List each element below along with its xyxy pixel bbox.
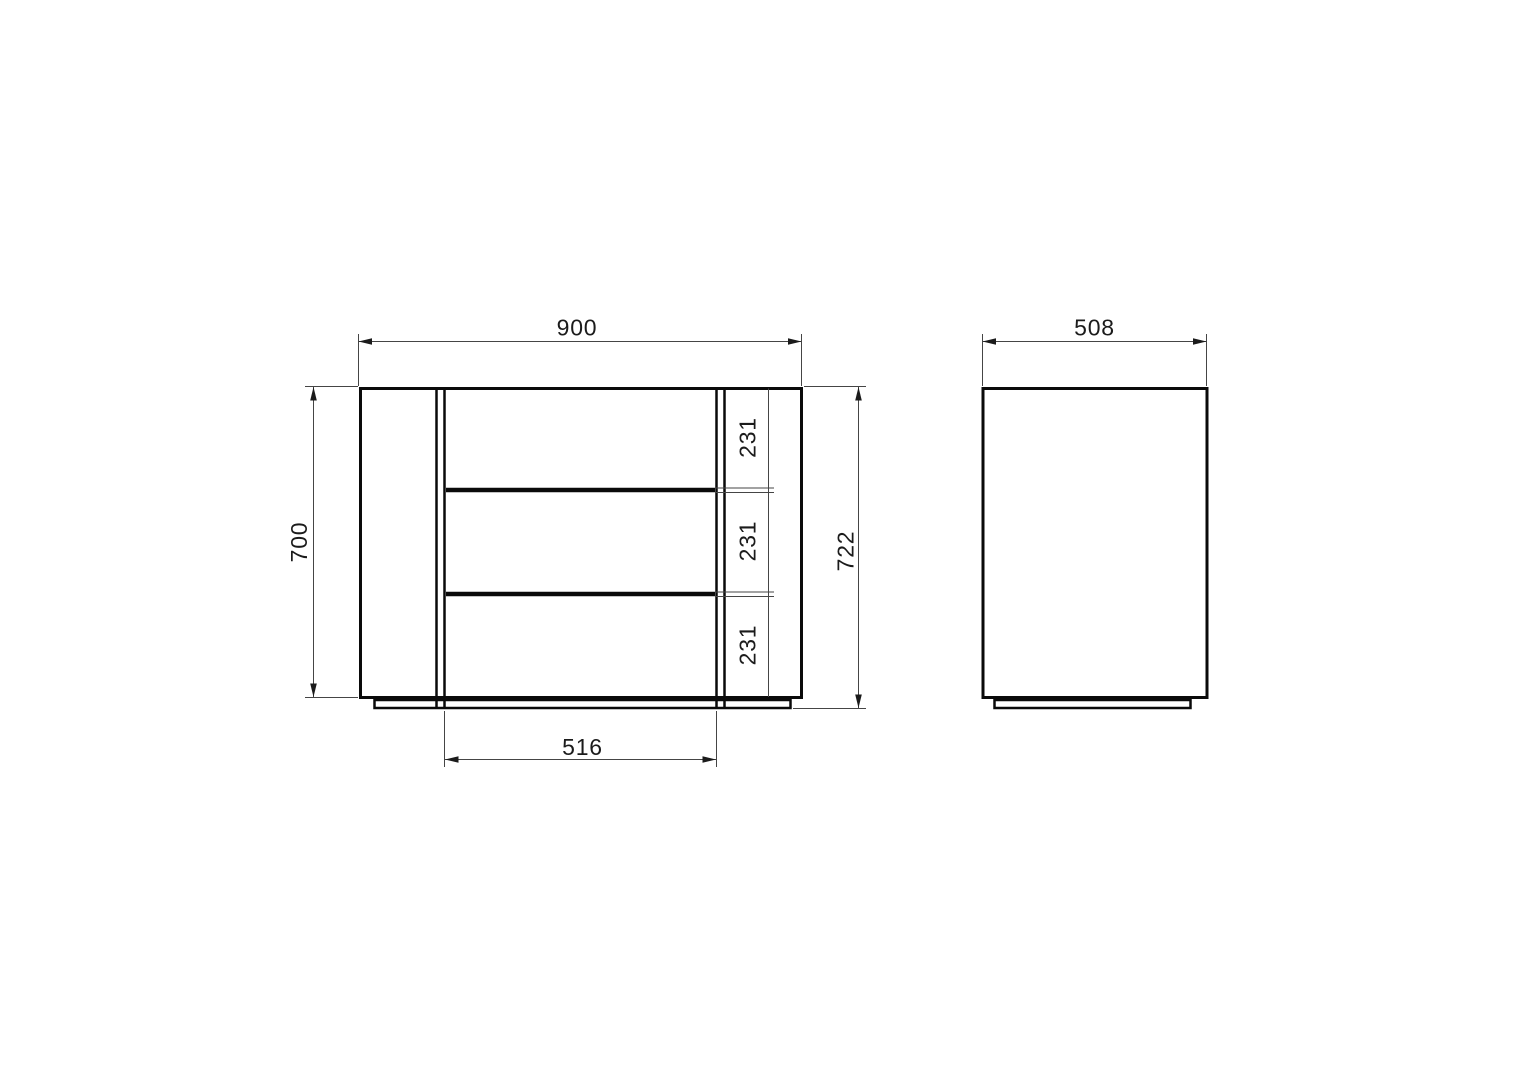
drawing-sheet: 900 700 722 231 231 [0,0,1521,1080]
dimension-label-depth: 508 [1074,315,1115,341]
dimension-label-drawer-2: 231 [735,521,761,562]
dimension-overall-width: 900 [359,315,802,387]
dimension-total-height: 722 [793,387,866,709]
dimension-label-drawer-3: 231 [735,625,761,666]
technical-drawing-canvas: 900 700 722 231 231 [0,0,1521,1080]
dimension-depth: 508 [983,315,1207,387]
dimension-label-drawer-1: 231 [735,417,761,458]
dimension-body-height: 700 [286,387,358,698]
dimension-label-drawer-bank-width: 516 [562,734,603,760]
arrowhead-right-icon [788,338,802,345]
arrowhead-up-icon [855,387,862,401]
arrowhead-left-icon [983,338,997,345]
dimension-label-total-height: 722 [833,531,859,572]
arrowhead-right-icon [703,756,717,763]
dimension-label-overall-width: 900 [557,315,598,341]
side-plinth [995,700,1191,708]
dimension-drawer-bank-width: 516 [445,711,717,767]
arrowhead-left-icon [445,756,459,763]
arrowhead-up-icon [310,387,317,401]
dimension-label-body-height: 700 [286,522,312,563]
side-view [983,389,1207,709]
arrowhead-left-icon [359,338,373,345]
arrowhead-down-icon [310,684,317,698]
arrowhead-down-icon [855,695,862,709]
side-cabinet-outline [983,389,1207,698]
arrowhead-right-icon [1193,338,1207,345]
